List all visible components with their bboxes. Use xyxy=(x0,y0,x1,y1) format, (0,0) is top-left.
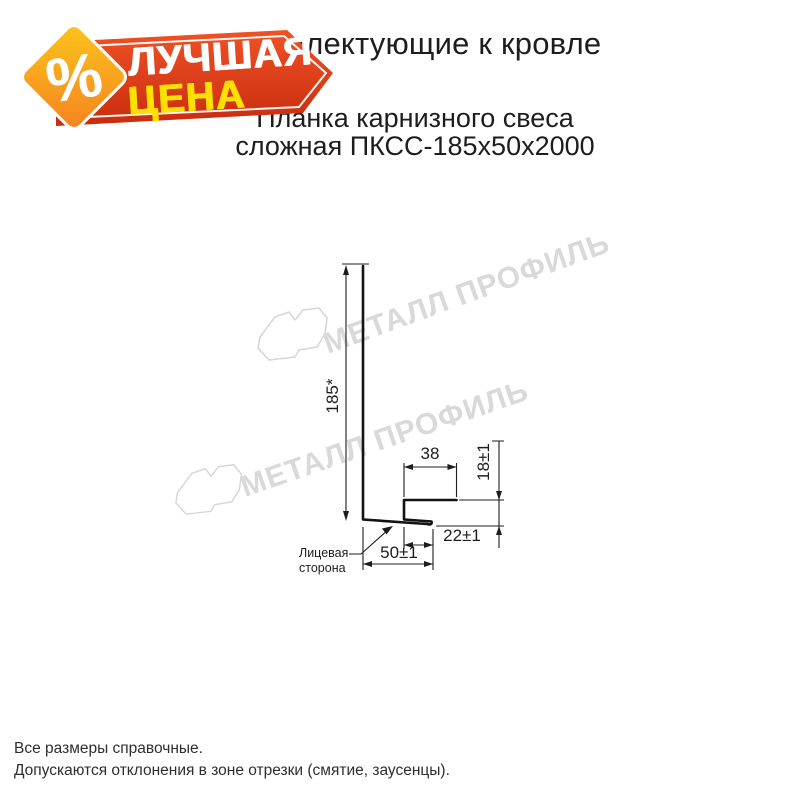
footer-note-line2: Допускаются отклонения в зоне отрезки (с… xyxy=(14,760,450,782)
dimension-38: 38 xyxy=(404,444,457,497)
face-side-callout: Лицевая сторона xyxy=(299,526,393,575)
dim-label-22: 22±1 xyxy=(443,526,481,545)
footer-notes: Все размеры справочные. Допускаются откл… xyxy=(14,738,450,782)
dimension-50: 50±1 xyxy=(363,527,433,570)
dim-label-50: 50±1 xyxy=(380,543,418,562)
metall-profil-logo-icon xyxy=(176,465,242,514)
percent-icon: % xyxy=(31,37,117,119)
face-side-label-line1: Лицевая xyxy=(299,546,348,560)
watermark-text: МЕТАЛЛ ПРОФИЛЬ xyxy=(237,374,533,504)
dim-label-18: 18±1 xyxy=(474,443,493,481)
watermark-group: МЕТАЛЛ ПРОФИЛЬ МЕТАЛЛ ПРОФИЛЬ xyxy=(176,226,615,514)
face-side-label-line2: сторона xyxy=(299,561,346,575)
dim-label-38: 38 xyxy=(421,444,440,463)
best-price-badge: % ЛУЧШАЯ ЦЕНА xyxy=(16,14,350,156)
product-image-page: МЕТАЛЛ ПРОФИЛЬ МЕТАЛЛ ПРОФИЛЬ 185* 38 xyxy=(0,0,800,800)
dim-label-185: 185* xyxy=(323,378,342,413)
footer-note-line1: Все размеры справочные. xyxy=(14,738,450,760)
badge-label-bottom: ЦЕНА xyxy=(127,72,247,124)
metall-profil-logo-icon xyxy=(258,308,327,360)
